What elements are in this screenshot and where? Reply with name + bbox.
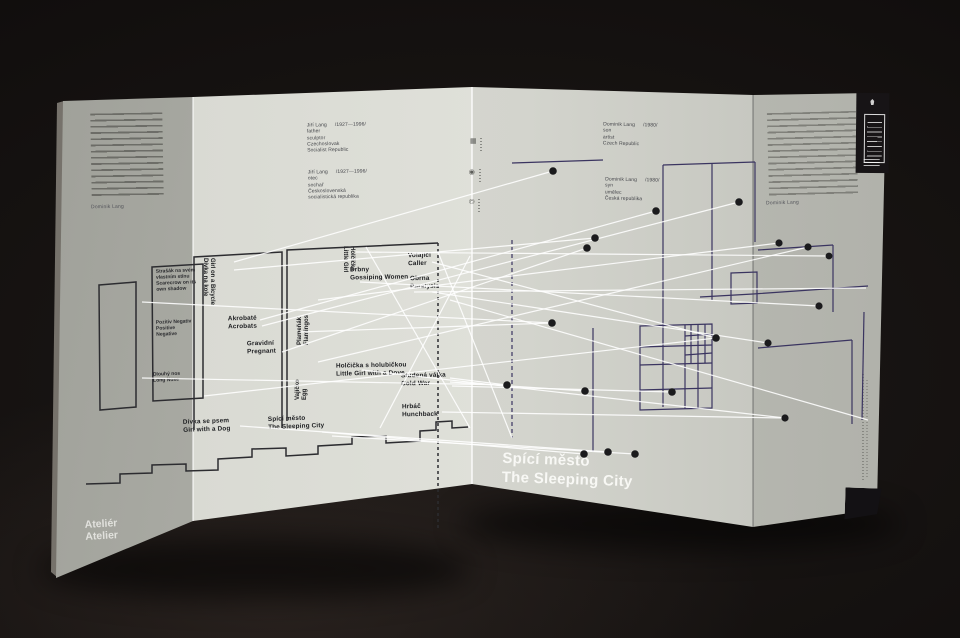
map-overlay [0, 0, 960, 638]
connection-lines [142, 171, 868, 454]
brochure-photo: Dominik Lang Dominik Lang Jiří Lang/1927… [0, 0, 960, 638]
left-map-lines [86, 243, 468, 528]
